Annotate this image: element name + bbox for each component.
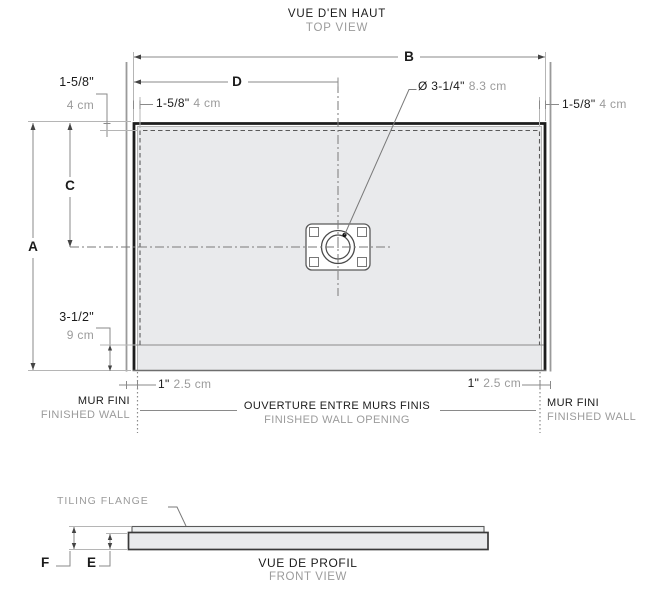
dim-label-B: B	[401, 50, 417, 65]
overhang-left-metric: 2.5 cm	[174, 377, 212, 391]
flange-left-imperial: 1-5/8"	[59, 76, 94, 90]
overhang-right-imperial: 1"	[468, 376, 480, 390]
drain-diameter-imperial: Ø 3-1/4"	[418, 79, 465, 93]
front-view-title-en: FRONT VIEW	[158, 571, 458, 584]
tiling-flange-leader	[168, 507, 186, 526]
front-ledge-metric: 9 cm	[67, 329, 94, 342]
shower-base-technical-drawing: VUE D'EN HAUT TOP VIEW B D A C 1-5/8" 4 …	[0, 0, 654, 601]
overhang-right-metric: 2.5 cm	[483, 376, 521, 390]
wall-left-label-fr: MUR FINI	[78, 395, 130, 407]
front-view-title-fr: VUE DE PROFIL	[158, 557, 458, 570]
dim-label-F: F	[41, 556, 49, 571]
wall-right-label-fr: MUR FINI	[547, 397, 599, 409]
dim-label-C: C	[62, 179, 78, 194]
front-view-profile	[129, 507, 489, 550]
front-ledge-dimension	[96, 328, 136, 371]
flange-top-imperial: 1-5/8"	[156, 96, 189, 110]
flange-left-metric: 4 cm	[67, 99, 94, 112]
top-view-title-fr: VUE D'EN HAUT	[187, 8, 487, 21]
flange-top-metric: 4 cm	[193, 96, 220, 110]
front-ledge-imperial: 3-1/2"	[59, 311, 94, 325]
opening-label-fr: OUVERTURE ENTRE MURS FINIS	[187, 400, 487, 412]
drawing-linework	[0, 0, 654, 601]
flange-right-label: 1-5/8"4 cm	[562, 98, 627, 111]
flange-right-imperial: 1-5/8"	[562, 97, 595, 111]
overhang-right-label: 1"2.5 cm	[468, 377, 521, 390]
dim-label-D: D	[229, 75, 245, 90]
top-view-title-en: TOP VIEW	[187, 22, 487, 35]
flange-left-leader	[96, 94, 138, 137]
dim-label-A: A	[25, 240, 41, 255]
opening-label-en: FINISHED WALL OPENING	[187, 414, 487, 426]
dim-label-E: E	[87, 556, 96, 571]
wall-right-label-en: FINISHED WALL	[547, 411, 636, 423]
wall-left-label-en: FINISHED WALL	[41, 409, 130, 421]
tiling-flange-label: TILING FLANGE	[57, 496, 149, 508]
overhang-left-label: 1"2.5 cm	[158, 378, 211, 391]
overhang-left-imperial: 1"	[158, 377, 170, 391]
drain-diameter-metric: 8.3 cm	[469, 79, 507, 93]
flange-top-label: 1-5/8"4 cm	[156, 97, 221, 110]
drain-diameter-label: Ø 3-1/4"8.3 cm	[418, 80, 507, 93]
flange-right-metric: 4 cm	[599, 97, 626, 111]
